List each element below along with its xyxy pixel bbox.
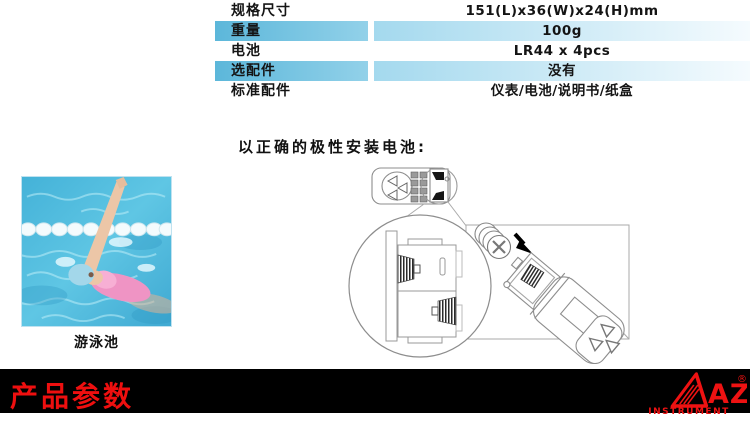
pool-caption: 游泳池 <box>21 332 172 352</box>
spec-value: 没有 <box>374 61 750 81</box>
spec-label: 规格尺寸 <box>215 1 368 21</box>
table-row: 规格尺寸 151(L)x36(W)x24(H)mm <box>215 1 750 21</box>
battery-diagram <box>340 155 660 371</box>
spec-value: 151(L)x36(W)x24(H)mm <box>374 1 750 21</box>
spec-value: 100g <box>374 21 750 41</box>
footer-bar: 产品参数 AZ ® INSTRUMENT <box>0 369 750 413</box>
table-row: 电池 LR44 x 4pcs <box>215 41 750 61</box>
table-row: 选配件 没有 <box>215 61 750 81</box>
battery-instruction-text: 以正确的极性安装电池: <box>238 136 427 157</box>
page-title: 产品参数 <box>10 375 134 415</box>
az-logo: AZ ® INSTRUMENT <box>632 370 747 416</box>
product-spec-page: 规格尺寸 151(L)x36(W)x24(H)mm 重量 100g 电池 LR4… <box>0 0 750 423</box>
spring-icon <box>398 255 414 283</box>
spec-label: 重量 <box>215 21 368 41</box>
spec-value: LR44 x 4pcs <box>374 41 750 61</box>
spec-label: 标准配件 <box>215 81 368 101</box>
table-row: 重量 100g <box>215 21 750 41</box>
magnifier-circle <box>349 215 491 357</box>
battery-compartment-detail <box>386 231 462 343</box>
spec-table: 规格尺寸 151(L)x36(W)x24(H)mm 重量 100g 电池 LR4… <box>215 1 750 101</box>
swimmer-goggles <box>89 272 94 277</box>
registered-mark: ® <box>737 374 747 385</box>
spec-label: 选配件 <box>215 61 368 81</box>
spec-label: 电池 <box>215 41 368 61</box>
device-top-view <box>372 168 457 204</box>
spring-icon <box>438 297 456 325</box>
az-logo-subtext: INSTRUMENT <box>648 407 730 416</box>
spec-value: 仪表/电池/说明书/纸盒 <box>374 81 750 101</box>
pool-photo <box>21 176 172 327</box>
table-row: 标准配件 仪表/电池/说明书/纸盒 <box>215 81 750 101</box>
